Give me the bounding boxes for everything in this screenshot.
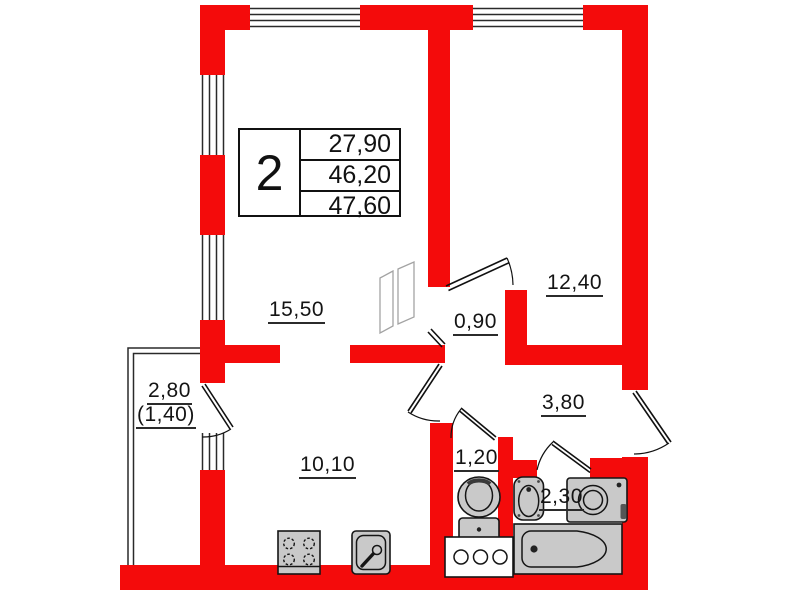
- balcony-door-swing: [202, 384, 233, 437]
- room-area-label-kitchen: 10,10: [299, 454, 356, 479]
- room-area-label-corridor: 3,80: [541, 392, 586, 417]
- cabinet-icon: [445, 537, 513, 577]
- toilet-icon: [458, 477, 500, 541]
- window: [473, 9, 583, 27]
- kitchen-sink-icon: [352, 531, 390, 574]
- room-area-label-wc: 1,20: [454, 447, 499, 472]
- bathtub-icon: [514, 524, 622, 574]
- stamp-area: 46,20: [301, 159, 399, 192]
- room-area-label-living: 15,50: [268, 299, 325, 324]
- window: [203, 433, 224, 470]
- door-jamb-line: [428, 329, 445, 347]
- room-area-label-balcony-reduced: (1,40): [136, 404, 196, 429]
- stamp-living-area: 27,90: [301, 130, 399, 159]
- stamp-total-area: 47,60: [301, 192, 399, 221]
- window: [203, 75, 224, 155]
- floor-plan-canvas: [0, 0, 800, 600]
- bathroom-door-swing: [537, 441, 591, 473]
- stove-icon: [278, 531, 320, 574]
- stamp-rooms-count: 2: [240, 130, 301, 215]
- apartment-stamp: 2 27,90 46,20 47,60: [238, 128, 401, 217]
- window: [203, 235, 224, 320]
- room-area-label-hall: 0,90: [453, 311, 498, 336]
- wc-door-swing: [451, 408, 496, 440]
- entrance-door-swing: [633, 391, 671, 454]
- room-area-label-balcony: 2,80: [147, 380, 192, 405]
- room-area-label-bathroom: 2,30: [539, 486, 584, 511]
- stamp-areas: 27,90 46,20 47,60: [301, 130, 399, 215]
- floor-plan-page: { "plan": { "kind": "apartment-floor-pla…: [0, 0, 800, 600]
- window: [250, 9, 360, 27]
- living-hall-door-swing: [446, 258, 513, 291]
- kitchen-door-swing: [408, 364, 442, 421]
- folding-door-icon: [380, 262, 414, 333]
- room-area-label-bedroom: 12,40: [546, 272, 603, 297]
